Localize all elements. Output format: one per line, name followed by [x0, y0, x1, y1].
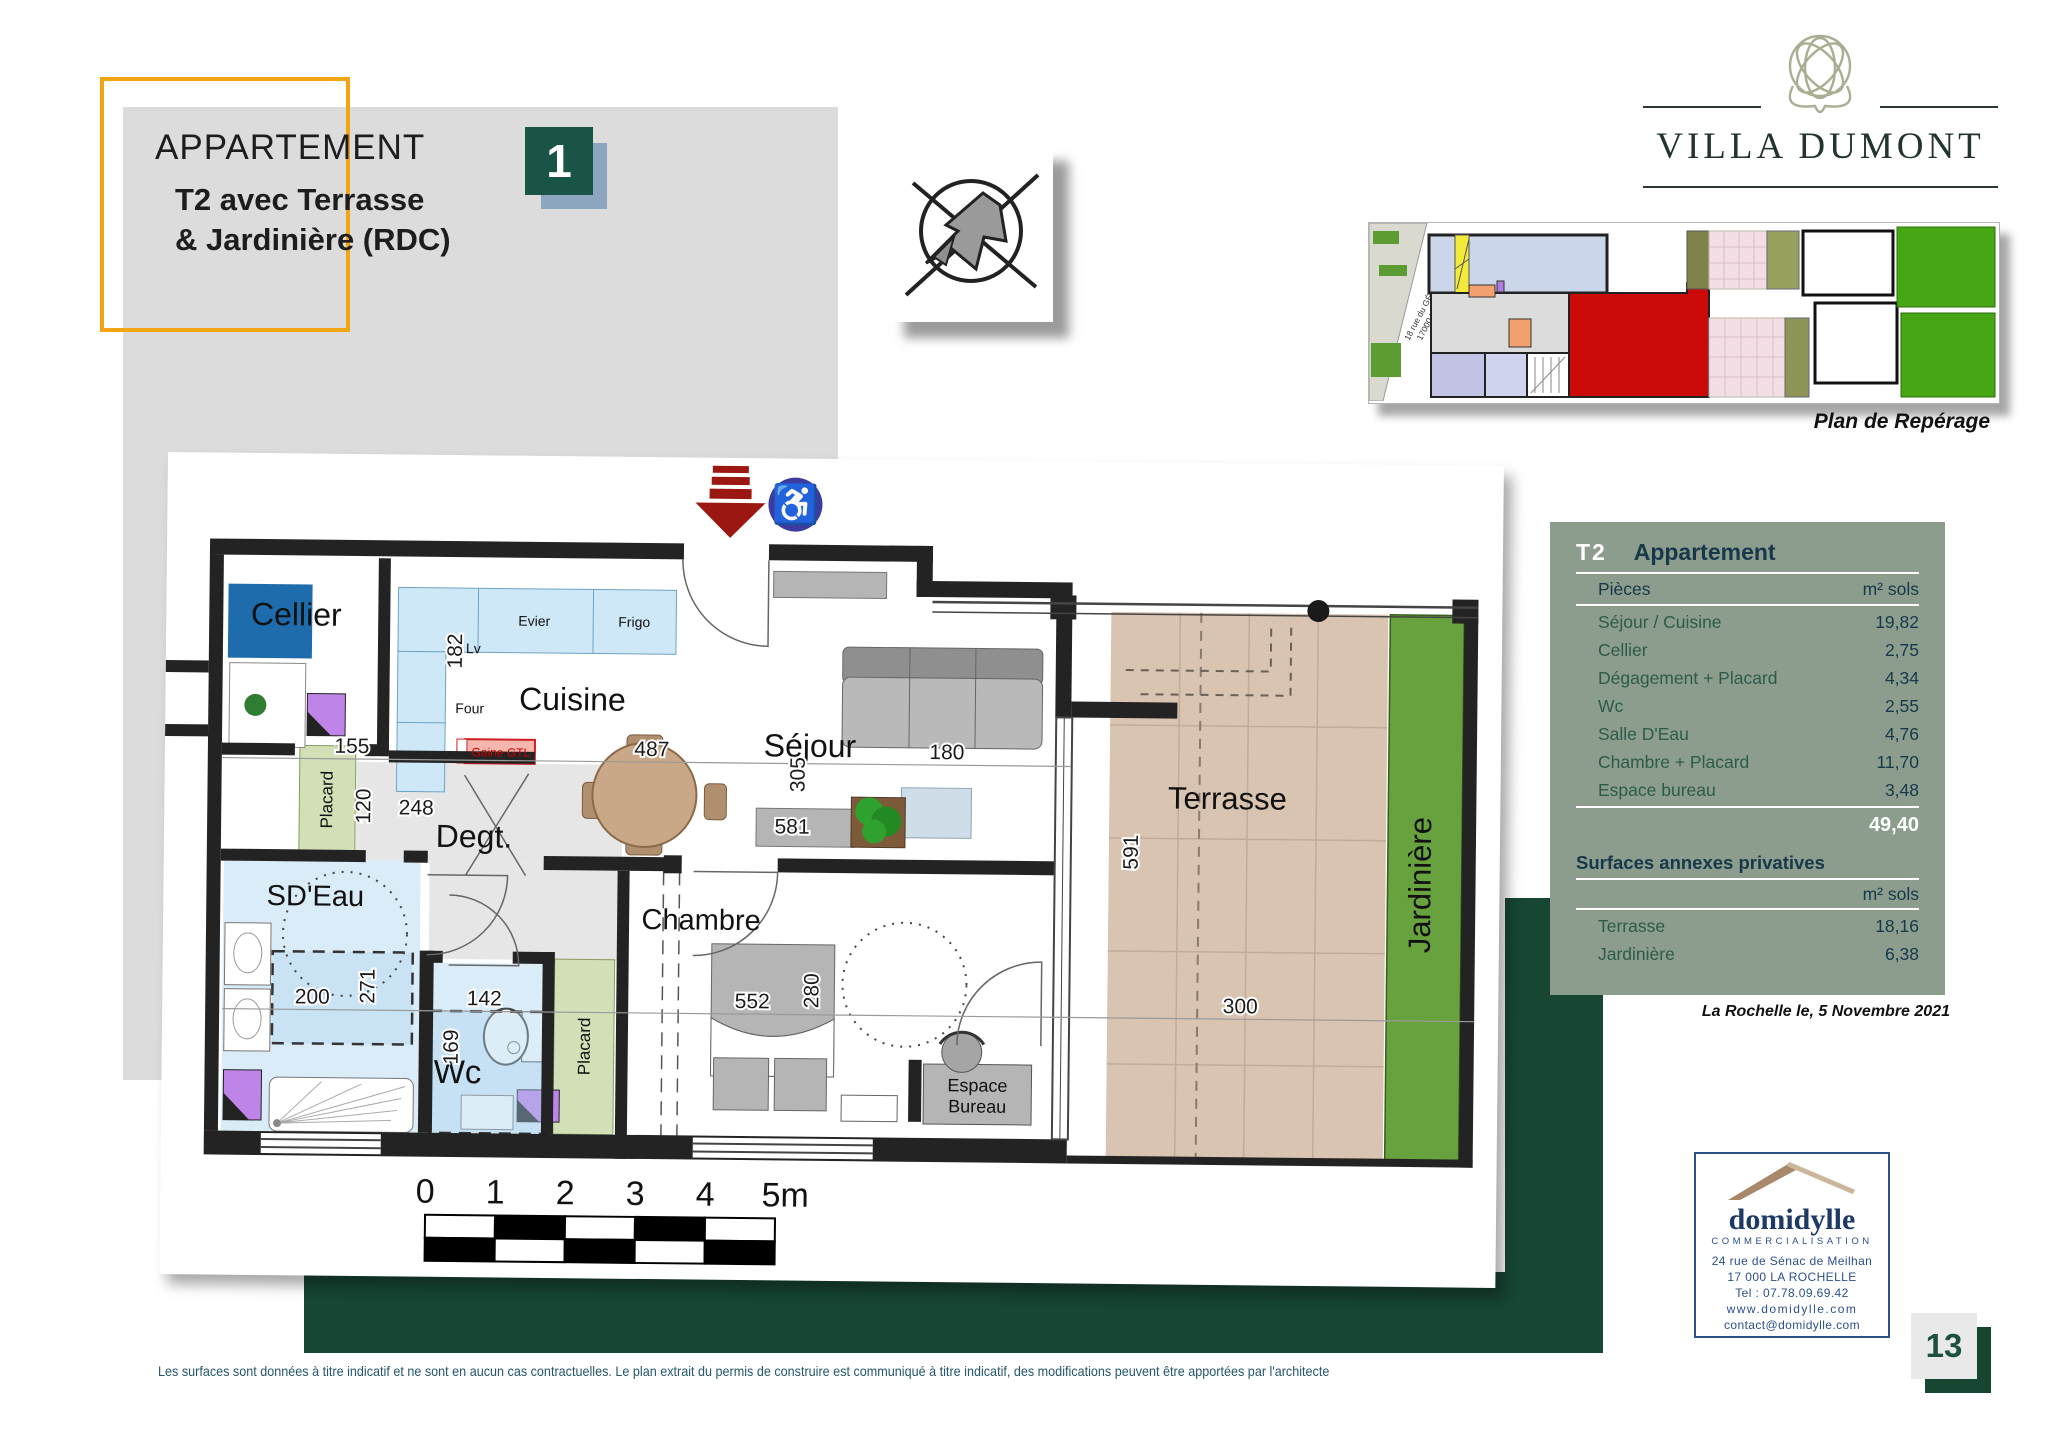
brand-logo: VILLA DUMONT: [1643, 28, 1998, 168]
agency-phone: Tel : 07.78.09.69.42: [1696, 1285, 1888, 1301]
disclaimer-text: Les surfaces sont données à titre indica…: [158, 1363, 1329, 1379]
turning-circle-chambre: [842, 922, 967, 1047]
table-row: Chambre + Placard11,70: [1576, 748, 1919, 776]
plant: [851, 797, 906, 848]
unit-number: 1: [546, 134, 572, 188]
agency-card: domidylle COMMERCIALISATION 24 rue de Sé…: [1694, 1152, 1890, 1338]
dim-248: 248: [399, 796, 434, 819]
label-espace: Espace: [947, 1075, 1007, 1096]
label-bureau: Bureau: [948, 1096, 1006, 1117]
page-number: 13: [1911, 1313, 1977, 1379]
bench: [841, 1095, 897, 1122]
degt-floor-2: [429, 863, 620, 961]
agency-email: contact@domidylle.com: [1696, 1317, 1888, 1333]
table-row: Terrasse18,16: [1576, 912, 1919, 940]
shower-clearance: [272, 951, 413, 1044]
dim-180: 180: [929, 741, 964, 764]
table-row: Salle D'Eau4,76: [1576, 720, 1919, 748]
label-degt: Degt.: [436, 818, 513, 855]
table-row: Dégagement + Placard4,34: [1576, 664, 1919, 692]
scale-2: 2: [556, 1174, 575, 1212]
dim-182: 182: [444, 633, 467, 668]
label-placard-2: Placard: [574, 1017, 594, 1075]
dim-169: 169: [440, 1029, 463, 1064]
title-line1: APPARTEMENT: [155, 128, 451, 168]
sofa: [842, 647, 1043, 749]
dim-305: 305: [786, 757, 809, 792]
page-number-value: 13: [1926, 1327, 1963, 1365]
table-row: Jardinière6,38: [1576, 940, 1919, 968]
north-symbol-card: [888, 145, 1053, 322]
dim-120: 120: [352, 788, 375, 823]
shower: [269, 1077, 414, 1133]
surface-table-title: Appartement: [1634, 539, 1776, 565]
label-gaine-gtl: Gaine GTL: [471, 745, 530, 760]
label-cellier: Cellier: [251, 596, 342, 633]
bed: [710, 944, 835, 1111]
site-locator-map: 18 rue du GÉNÉRAL DUMONT 17000 LA ROCHEL…: [1368, 222, 2000, 404]
title-line2: T2 avec Terrasse: [175, 182, 451, 218]
entry-arrow-icon: [695, 466, 766, 539]
title-line3: & Jardinière (RDC): [175, 222, 451, 258]
agency-roof-icon: [1722, 1158, 1862, 1202]
north-arrow-icon: [888, 145, 1053, 322]
table-row: Cellier2,75: [1576, 636, 1919, 664]
coffee-table: [901, 788, 972, 839]
dim-142: 142: [467, 987, 502, 1010]
site-map-caption: Plan de Repérage: [1690, 410, 1990, 434]
agency-address1: 24 rue de Sénac de Meilhan: [1696, 1253, 1888, 1269]
unit-number-badge: 1: [525, 127, 593, 195]
date-note: La Rochelle le, 5 Novembre 2021: [1660, 1003, 1950, 1021]
label-jardiniere: Jardinière: [1402, 817, 1438, 953]
table-row: Wc2,55: [1576, 692, 1919, 720]
scale-1: 1: [486, 1173, 505, 1211]
scale-5m: 5m: [761, 1176, 809, 1214]
label-evier: Evier: [518, 613, 550, 629]
scale-0: 0: [416, 1173, 435, 1211]
dim-271: 271: [356, 968, 379, 1003]
col-header-rooms: Pièces: [1576, 576, 1651, 602]
floor-plan: ♿ Cellier Cuisine Séjour Degt. SD'Eau Wc…: [159, 452, 1504, 1288]
dim-552: 552: [735, 990, 770, 1013]
label-frigo: Frigo: [618, 614, 650, 630]
label-cuisine: Cuisine: [519, 681, 626, 718]
label-placard-1: Placard: [317, 771, 337, 829]
col-header-area: m² sols: [1863, 576, 1919, 602]
agency-name: domidylle: [1696, 1207, 1888, 1233]
dim-591: 591: [1120, 834, 1143, 869]
agency-website: www.domidylle.com: [1696, 1301, 1888, 1317]
label-four: Four: [455, 700, 484, 716]
table-row: Espace bureau3,48: [1576, 776, 1919, 804]
brand-flower-icon: [1643, 28, 1998, 114]
label-terrasse: Terrasse: [1168, 780, 1287, 816]
dim-155: 155: [334, 735, 369, 758]
brand-name: VILLA DUMONT: [1643, 125, 1998, 168]
terrace-area: [1106, 612, 1389, 1161]
label-chambre: Chambre: [641, 904, 761, 937]
label-lv: Lv: [466, 640, 481, 656]
label-sejour: Séjour: [764, 727, 857, 764]
sideboard-top: [774, 571, 887, 598]
dim-581: 581: [774, 815, 809, 838]
svg-text:♿: ♿: [772, 482, 820, 526]
surface-table-type: T2: [1576, 539, 1607, 565]
annex-title: Surfaces annexes privatives: [1576, 850, 1919, 876]
table-total: 49,40: [1869, 810, 1919, 840]
cellier-cabinet: [229, 663, 306, 748]
page-title: APPARTEMENT T2 avec Terrasse & Jardinièr…: [155, 128, 451, 258]
annex-col-area: m² sols: [1863, 882, 1919, 906]
scale-bar: 0 1 2 3 4 5m: [415, 1173, 809, 1265]
agency-address2: 17 000 LA ROCHELLE: [1696, 1269, 1888, 1285]
label-sdeau: SD'Eau: [266, 880, 364, 913]
site-map-graphic: 18 rue du GÉNÉRAL DUMONT 17000 LA ROCHEL…: [1369, 223, 1997, 401]
dim-300: 300: [1223, 995, 1258, 1018]
floor-plan-panel: ♿ Cellier Cuisine Séjour Degt. SD'Eau Wc…: [159, 452, 1504, 1288]
scale-4: 4: [696, 1176, 715, 1214]
agency-tagline: COMMERCIALISATION: [1696, 1236, 1888, 1247]
table-row: Séjour / Cuisine19,82: [1576, 608, 1919, 636]
accessibility-icon: ♿: [768, 477, 823, 532]
dim-200: 200: [295, 985, 330, 1008]
dim-487: 487: [634, 738, 669, 761]
scale-3: 3: [626, 1175, 645, 1213]
surface-table: T2 Appartement Pièces m² sols Séjour / C…: [1550, 522, 1945, 995]
dim-280: 280: [800, 973, 823, 1008]
